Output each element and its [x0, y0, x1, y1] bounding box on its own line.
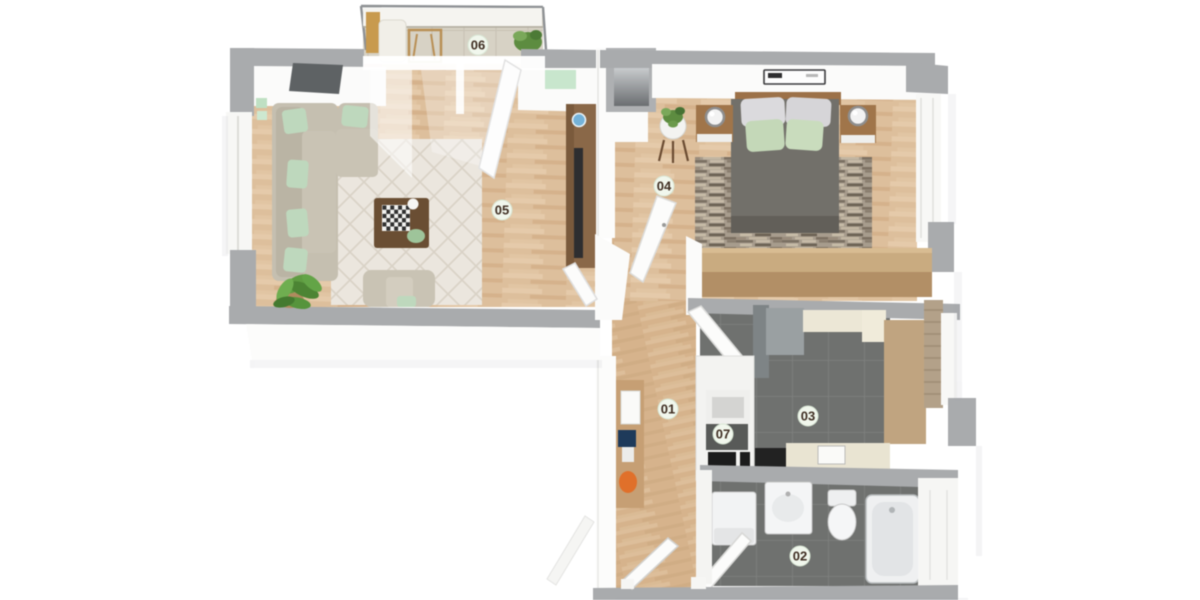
svg-text:05: 05 [495, 203, 509, 218]
svg-text:02: 02 [793, 549, 807, 564]
svg-text:07: 07 [716, 427, 730, 442]
svg-text:06: 06 [471, 38, 485, 53]
svg-text:04: 04 [657, 179, 672, 194]
svg-text:01: 01 [661, 402, 675, 417]
svg-text:03: 03 [801, 409, 815, 424]
